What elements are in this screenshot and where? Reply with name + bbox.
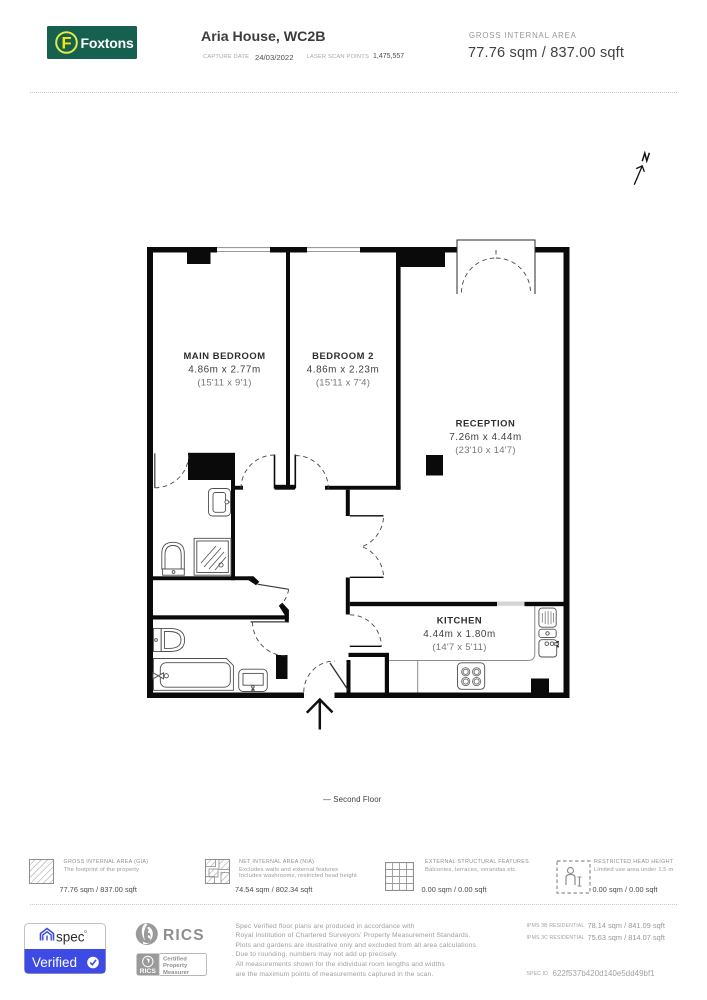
svg-text:RECEPTION: RECEPTION [456,418,516,429]
svg-text:RICS: RICS [139,968,156,975]
svg-text:(15'11 x 9'1): (15'11 x 9'1) [197,378,251,389]
svg-text:(14'7 x 5'11): (14'7 x 5'11) [432,642,486,653]
svg-text:4.44m x 1.80m: 4.44m x 1.80m [423,629,495,640]
svg-text:RICS: RICS [163,927,205,944]
svg-text:Measurer: Measurer [163,969,190,975]
svg-text:4.86m x 2.23m: 4.86m x 2.23m [307,365,379,376]
svg-text:KITCHEN: KITCHEN [437,615,483,626]
svg-text:Verified: Verified [32,955,77,970]
svg-text:BEDROOM 2: BEDROOM 2 [312,350,374,361]
svg-text:(15'11 x 7'4): (15'11 x 7'4) [316,378,370,389]
svg-text:spec: spec [56,930,85,945]
svg-text:7.26m x 4.44m: 7.26m x 4.44m [449,432,521,443]
svg-text:MAIN BEDROOM: MAIN BEDROOM [183,350,265,361]
svg-text:Property: Property [163,963,188,969]
svg-text:4.86m x 2.77m: 4.86m x 2.77m [188,365,260,376]
svg-text:Certified: Certified [163,956,187,962]
svg-text:(23'10 x 14'7): (23'10 x 14'7) [455,445,515,456]
